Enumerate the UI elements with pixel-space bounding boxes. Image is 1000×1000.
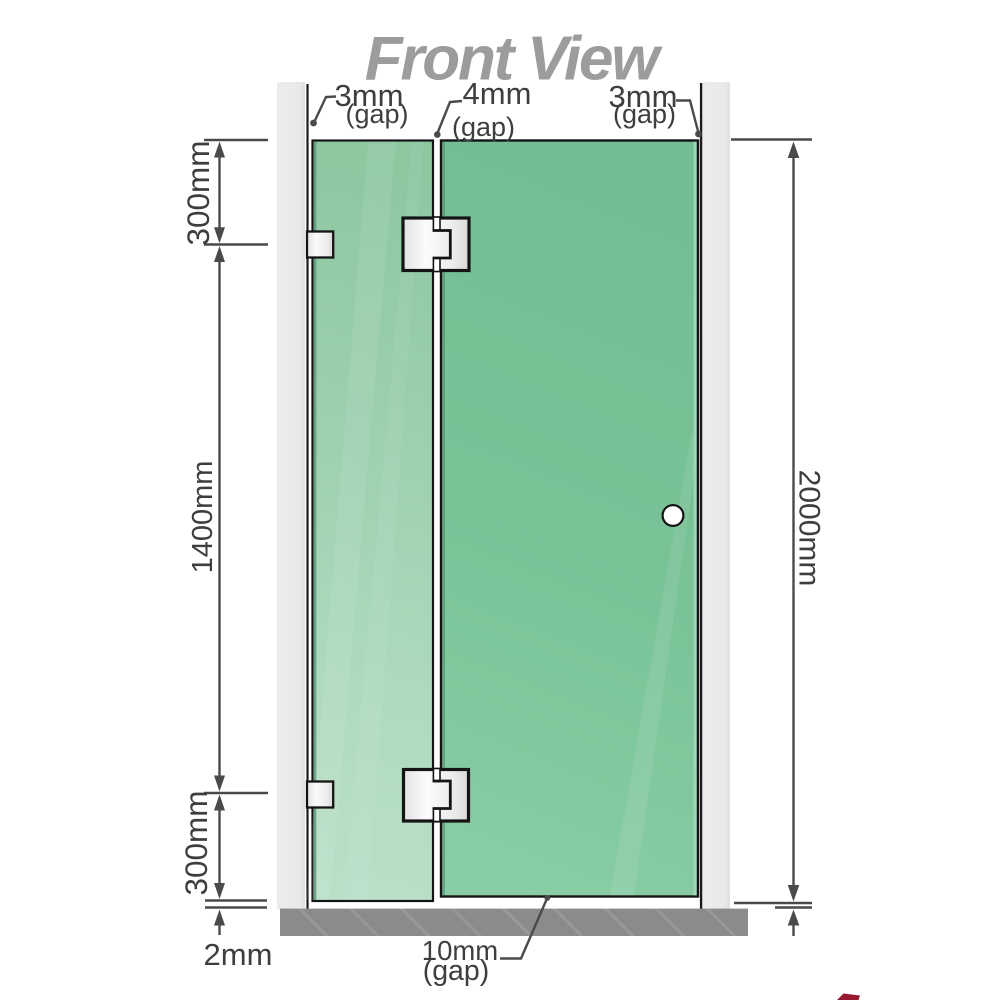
svg-text:2mm: 2mm bbox=[204, 937, 273, 972]
svg-text:1400mm: 1400mm bbox=[187, 461, 219, 574]
svg-text:300mm: 300mm bbox=[178, 790, 214, 895]
svg-text:(gap): (gap) bbox=[423, 955, 490, 987]
svg-text:4mm: 4mm bbox=[463, 76, 532, 111]
svg-text:2000mm: 2000mm bbox=[793, 470, 826, 587]
svg-text:(gap): (gap) bbox=[613, 99, 676, 129]
svg-text:(gap): (gap) bbox=[345, 99, 408, 129]
svg-text:300mm: 300mm bbox=[180, 140, 216, 245]
svg-text:(gap): (gap) bbox=[452, 112, 515, 142]
